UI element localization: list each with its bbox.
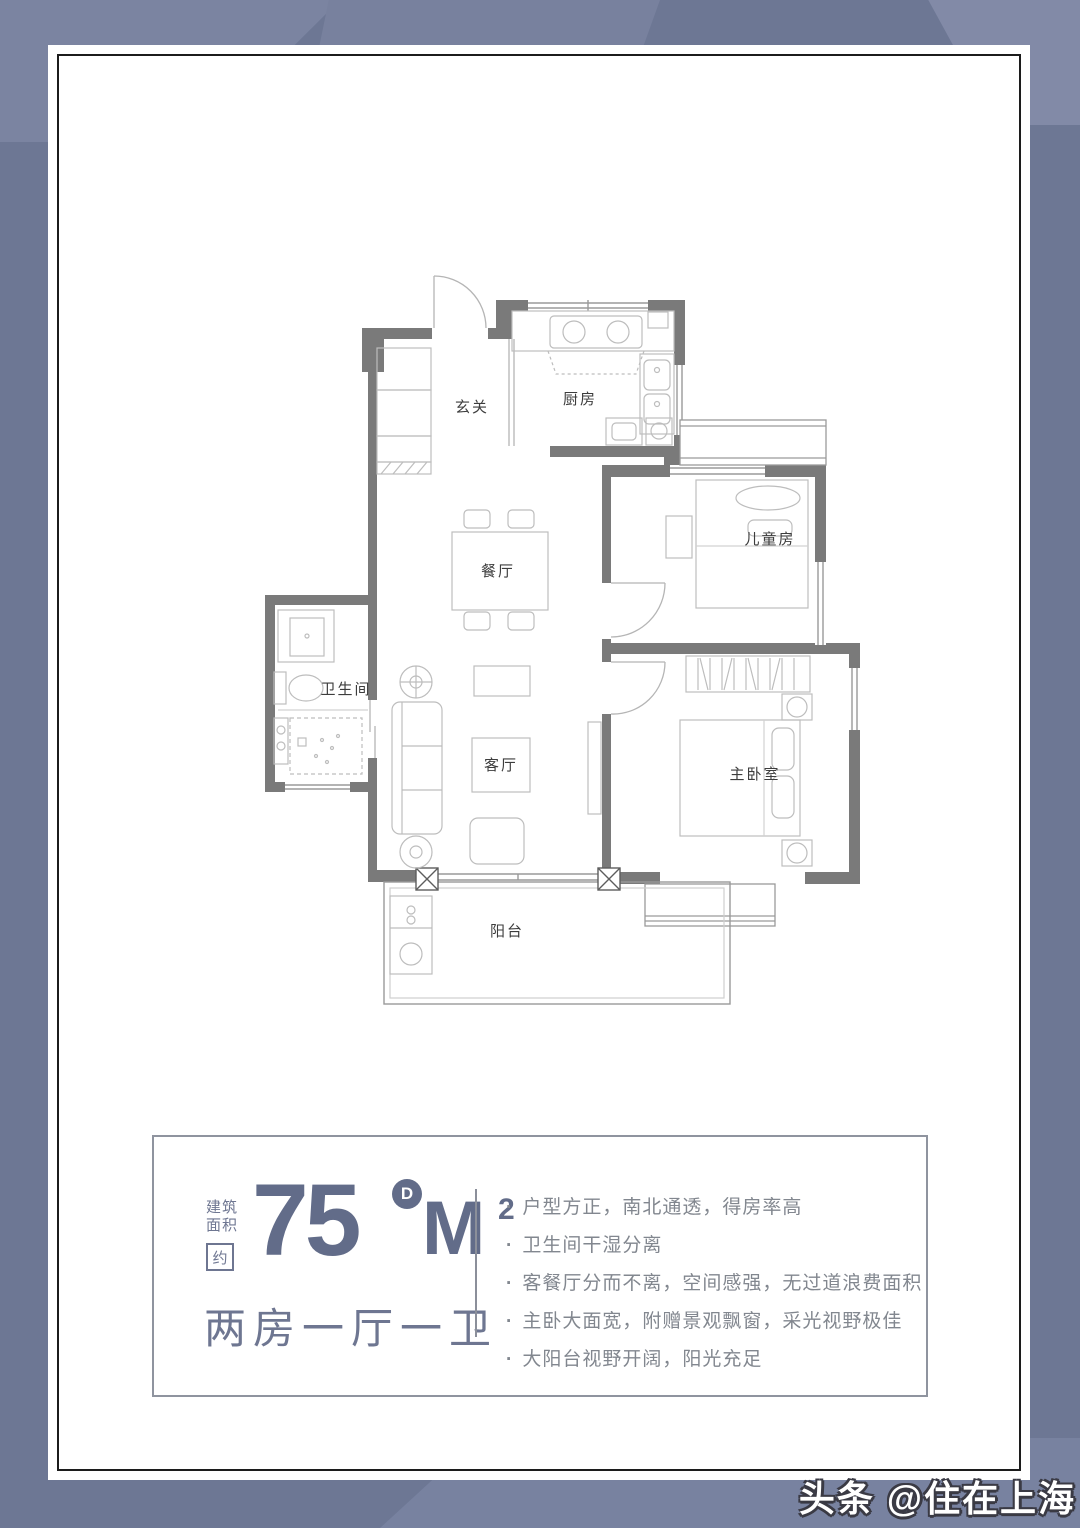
room-label-foyer: 玄关 <box>455 399 489 416</box>
room-label-living: 客厅 <box>484 757 518 774</box>
watermark: 头条 @住在上海 <box>799 1470 1076 1522</box>
walls <box>265 300 860 884</box>
floor-plan: 玄关 厨房 餐厅 卫生间 客厅 儿童房 主卧室 阳台 <box>250 270 930 1015</box>
area-caption-line2: 面积 <box>206 1217 238 1235</box>
room-label-balcony: 阳台 <box>490 923 524 940</box>
area-caption-line1: 建筑 <box>206 1199 238 1217</box>
area-caption: 建筑 面积 <box>206 1199 238 1235</box>
room-label-kitchen: 厨房 <box>563 391 597 408</box>
feature-item: 户型方正，南北通透，得房率高 <box>506 1189 922 1227</box>
room-label-master: 主卧室 <box>729 766 780 783</box>
feature-item: 主卧大面宽，附赠景观飘窗，采光视野极佳 <box>506 1303 922 1341</box>
unit-type-badge: D <box>392 1179 422 1209</box>
approx-box: 约 <box>206 1243 234 1271</box>
room-label-bathroom: 卫生间 <box>320 681 371 698</box>
bay-windows <box>645 420 826 926</box>
panel-divider <box>475 1189 477 1337</box>
room-label-dining: 餐厅 <box>481 563 515 580</box>
feature-item: 卫生间干湿分离 <box>506 1227 922 1265</box>
info-panel: 建筑 面积 约 75 D M 2 两房一厅一卫 户型方正，南北通透，得房率高 卫… <box>152 1135 928 1397</box>
area-value: 75 <box>252 1177 357 1263</box>
feature-item: 大阳台视野开阔，阳光充足 <box>506 1341 922 1379</box>
layout-summary: 两房一厅一卫 <box>204 1295 498 1356</box>
feature-list: 户型方正，南北通透，得房率高 卫生间干湿分离 客餐厅分而不离，空间感强，无过道浪… <box>506 1189 922 1379</box>
room-label-children: 儿童房 <box>744 530 795 548</box>
feature-item: 客餐厅分而不离，空间感强，无过道浪费面积 <box>506 1265 922 1303</box>
